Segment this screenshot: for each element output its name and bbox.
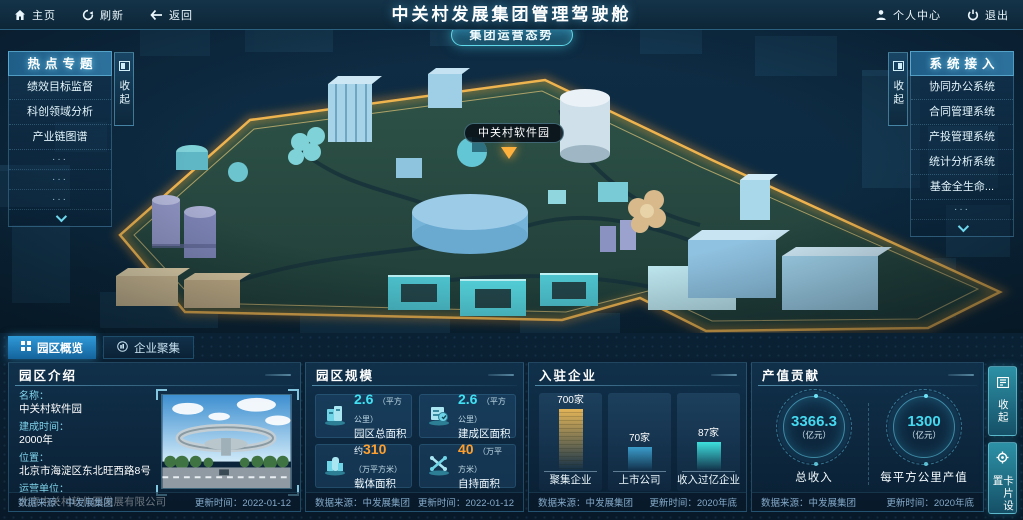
back-button[interactable]: 返回	[150, 7, 193, 23]
output-value-panel: 产值贡献 3366.3 （亿元） 总收入 1300 （亿元） 每平方公里产值 数…	[751, 362, 984, 512]
panel-footer: 数据来源：中发展集团 更新时间：2020年底	[752, 492, 983, 511]
bar-value-label: 70家	[629, 432, 650, 445]
stat-card-built-area: 2.6 （平方公里） 建成区面积	[419, 394, 516, 438]
stat-value: 2.6	[354, 391, 373, 407]
panel-footer: 数据来源：中发展集团 更新时间：2022-01-12	[306, 492, 523, 511]
hot-topics-item[interactable]: 科创领域分析	[9, 100, 111, 125]
chevron-down-icon	[56, 211, 67, 222]
blueprint-icon	[427, 402, 451, 431]
tab-enterprise-cluster[interactable]: 企业聚集	[103, 336, 194, 359]
collapse-panel-icon	[119, 58, 130, 76]
back-label: 返回	[169, 7, 193, 23]
refresh-button[interactable]: 刷新	[82, 7, 124, 23]
system-access-item[interactable]: 产投管理系统	[911, 125, 1013, 150]
data-source: 数据来源：中发展集团	[315, 495, 410, 509]
photo-corner-decoration	[288, 389, 299, 400]
photo-corner-decoration	[156, 389, 167, 400]
data-source: 数据来源：中发展集团	[18, 495, 113, 509]
personal-center-button[interactable]: 个人中心	[875, 7, 941, 23]
logout-label: 退出	[985, 7, 1009, 23]
chevron-down-icon	[958, 221, 969, 232]
data-source: 数据来源：中发展集团	[538, 495, 633, 509]
stat-label: 建成区面积	[458, 427, 511, 441]
system-access-item[interactable]: 基金全生命...	[911, 175, 1013, 200]
update-time: 更新时间：2020年底	[886, 495, 974, 509]
logout-button[interactable]: 退出	[967, 7, 1009, 23]
update-time: 更新时间：2022-01-12	[195, 495, 291, 509]
stat-unit: （亿元）	[907, 430, 941, 441]
panel-header-decoration	[711, 374, 737, 376]
resident-enterprises-panel: 入驻企业 700家 聚集企业 70家 上市公司 87家 收入过亿企业	[528, 362, 747, 512]
panel-footer: 数据来源：中发展集团 更新时间：2020年底	[529, 492, 746, 511]
stat-ring: 3366.3 （亿元）	[783, 396, 845, 458]
user-icon	[875, 9, 887, 21]
hot-topics-placeholder: ···	[9, 190, 111, 210]
tab-label: 企业聚集	[134, 340, 180, 356]
bottom-section: 园区概览 企业聚集 园区介绍 名称： 中关村软件园 建成时间： 2000年 位置…	[0, 333, 1023, 520]
stat-label: 总收入	[795, 469, 833, 485]
bar-chart-column: 700家 聚集企业	[539, 393, 602, 491]
stat-label: 载体面积	[354, 477, 404, 491]
stat-output-per-sqkm: 1300 （亿元） 每平方公里产值	[872, 396, 976, 485]
stat-label: 每平方公里产值	[880, 469, 968, 485]
bar-over-100m-revenue	[697, 442, 721, 471]
stat-prefix: 约	[354, 446, 363, 456]
stat-card-carrier-area: 约310 （万平方米） 载体面积	[315, 444, 412, 488]
park-scale-panel: 园区规模 2.6 （平方公里） 园区总面积 2.6 （平方公里）	[305, 362, 524, 512]
dashboard-stage: 集团运营态势 中关村软件园 主页 刷新 返回 中关村发展集团管理驾驶舱 个人中心	[0, 0, 1023, 520]
system-access-panel: 系统接入 协同办公系统 合同管理系统 产投管理系统 统计分析系统 基金全生命..…	[910, 52, 1014, 237]
topbar-left-group: 主页 刷新 返回	[14, 7, 193, 23]
enterprise-circle-icon	[117, 341, 128, 355]
system-access-item[interactable]: 合同管理系统	[911, 100, 1013, 125]
bar-value-label: 87家	[698, 427, 719, 440]
refresh-icon	[82, 9, 94, 21]
bar-chart-column: 87家 收入过亿企业	[677, 393, 740, 491]
card-settings-label: 卡片设置	[992, 475, 1013, 513]
panel-header-decoration	[948, 374, 974, 376]
home-icon	[14, 9, 26, 21]
topbar: 主页 刷新 返回 中关村发展集团管理驾驶舱 个人中心 退出	[0, 0, 1023, 30]
stat-value: 1300	[907, 413, 940, 430]
cards-collapse-button[interactable]: 收起	[988, 366, 1017, 436]
stat-unit: （万平方米）	[354, 465, 402, 474]
bar-chart-column: 70家 上市公司	[608, 393, 671, 491]
panel-title: 园区介绍	[9, 363, 300, 386]
collapse-panel-icon	[893, 58, 904, 76]
info-field: 建成时间： 2000年	[19, 421, 157, 447]
bar-category-label: 上市公司	[619, 472, 661, 489]
park-photo	[161, 394, 294, 491]
system-access-collapse-button[interactable]: 收起	[888, 52, 908, 126]
system-access-item[interactable]: 协同办公系统	[911, 75, 1013, 100]
card-settings-button[interactable]: 卡片设置	[988, 442, 1017, 514]
bar-aggregated-enterprises	[559, 409, 583, 471]
collapse-label: 收起	[119, 80, 130, 107]
buildings-icon	[323, 402, 347, 431]
vertical-divider	[868, 403, 869, 485]
collapse-label: 收起	[893, 80, 904, 107]
map-3d-area	[0, 30, 1023, 333]
park-map-label[interactable]: 中关村软件园	[464, 123, 564, 143]
grid-icon	[21, 341, 31, 354]
map-3d-scene	[0, 30, 1023, 333]
stat-value: 40	[458, 441, 474, 457]
stat-card-total-area: 2.6 （平方公里） 园区总面积	[315, 394, 412, 438]
info-field: 名称： 中关村软件园	[19, 390, 157, 416]
park-location-marker-icon[interactable]	[501, 147, 517, 159]
bar-category-label: 收入过亿企业	[677, 472, 740, 489]
bar-listed-companies	[628, 447, 652, 471]
field-label: 位置：	[19, 452, 157, 465]
page-title: 中关村发展集团管理驾驶舱	[392, 0, 632, 30]
hot-topics-panel: 热点专题 绩效目标监督 科创领域分析 产业链图谱 ··· ··· ···	[8, 52, 112, 227]
back-arrow-icon	[150, 9, 163, 21]
park-intro-panel: 园区介绍 名称： 中关村软件园 建成时间： 2000年 位置： 北京市海淀区东北…	[8, 362, 301, 512]
power-icon	[967, 9, 979, 21]
stat-total-revenue: 3366.3 （亿元） 总收入	[762, 396, 866, 485]
home-label: 主页	[32, 7, 56, 23]
update-time: 更新时间：2022-01-12	[418, 495, 514, 509]
hot-topics-placeholder: ···	[9, 150, 111, 170]
collapse-panel-icon	[997, 375, 1009, 393]
hot-topics-item[interactable]: 产业链图谱	[9, 125, 111, 150]
update-time: 更新时间：2020年底	[649, 495, 737, 509]
info-field: 位置： 北京市海淀区东北旺西路8号	[19, 452, 157, 478]
ring-building-photo-illustration	[161, 394, 292, 489]
system-access-scroll-down[interactable]	[911, 220, 1013, 236]
hot-topics-placeholder: ···	[9, 170, 111, 190]
field-value: 中关村软件园	[19, 403, 157, 416]
stat-unit: （亿元）	[797, 430, 831, 441]
tab-label: 园区概览	[37, 340, 83, 356]
refresh-label: 刷新	[100, 7, 124, 23]
system-access-placeholder: ···	[911, 200, 1013, 220]
hot-topics-collapse-button[interactable]: 收起	[114, 52, 134, 126]
crossed-tools-icon	[427, 452, 451, 481]
stat-value: 3366.3	[791, 413, 837, 430]
stat-ring: 1300 （亿元）	[893, 396, 955, 458]
hot-topics-scroll-down[interactable]	[9, 210, 111, 226]
stat-label: 园区总面积	[354, 427, 407, 441]
hot-topics-item[interactable]: 绩效目标监督	[9, 75, 111, 100]
panel-footer: 数据来源：中发展集团 更新时间：2022-01-12	[9, 492, 300, 511]
gear-icon	[996, 451, 1009, 469]
home-button[interactable]: 主页	[14, 7, 56, 23]
collapse-label: 收起	[997, 399, 1008, 424]
carrier-buildings-icon	[323, 452, 347, 481]
panel-header-decoration	[488, 374, 514, 376]
panel-header-decoration	[265, 374, 291, 376]
system-access-item[interactable]: 统计分析系统	[911, 150, 1013, 175]
field-value: 北京市海淀区东北旺西路8号	[19, 465, 157, 478]
stat-label: 自持面积	[458, 477, 508, 491]
field-value: 2000年	[19, 434, 157, 447]
hot-topics-title: 热点专题	[8, 51, 112, 76]
tab-park-overview[interactable]: 园区概览	[8, 336, 96, 359]
stat-value: 310	[363, 441, 386, 457]
field-label: 名称：	[19, 390, 157, 403]
field-label: 建成时间：	[19, 421, 157, 434]
bar-value-label: 700家	[557, 394, 584, 407]
personal-center-label: 个人中心	[893, 7, 941, 23]
topbar-right-group: 个人中心 退出	[875, 7, 1009, 23]
data-source: 数据来源：中发展集团	[761, 495, 856, 509]
system-access-title: 系统接入	[910, 51, 1014, 76]
stat-card-selfheld-area: 40 （万平方米） 自持面积	[419, 444, 516, 488]
bar-category-label: 聚集企业	[550, 472, 592, 489]
stat-value: 2.6	[458, 391, 477, 407]
